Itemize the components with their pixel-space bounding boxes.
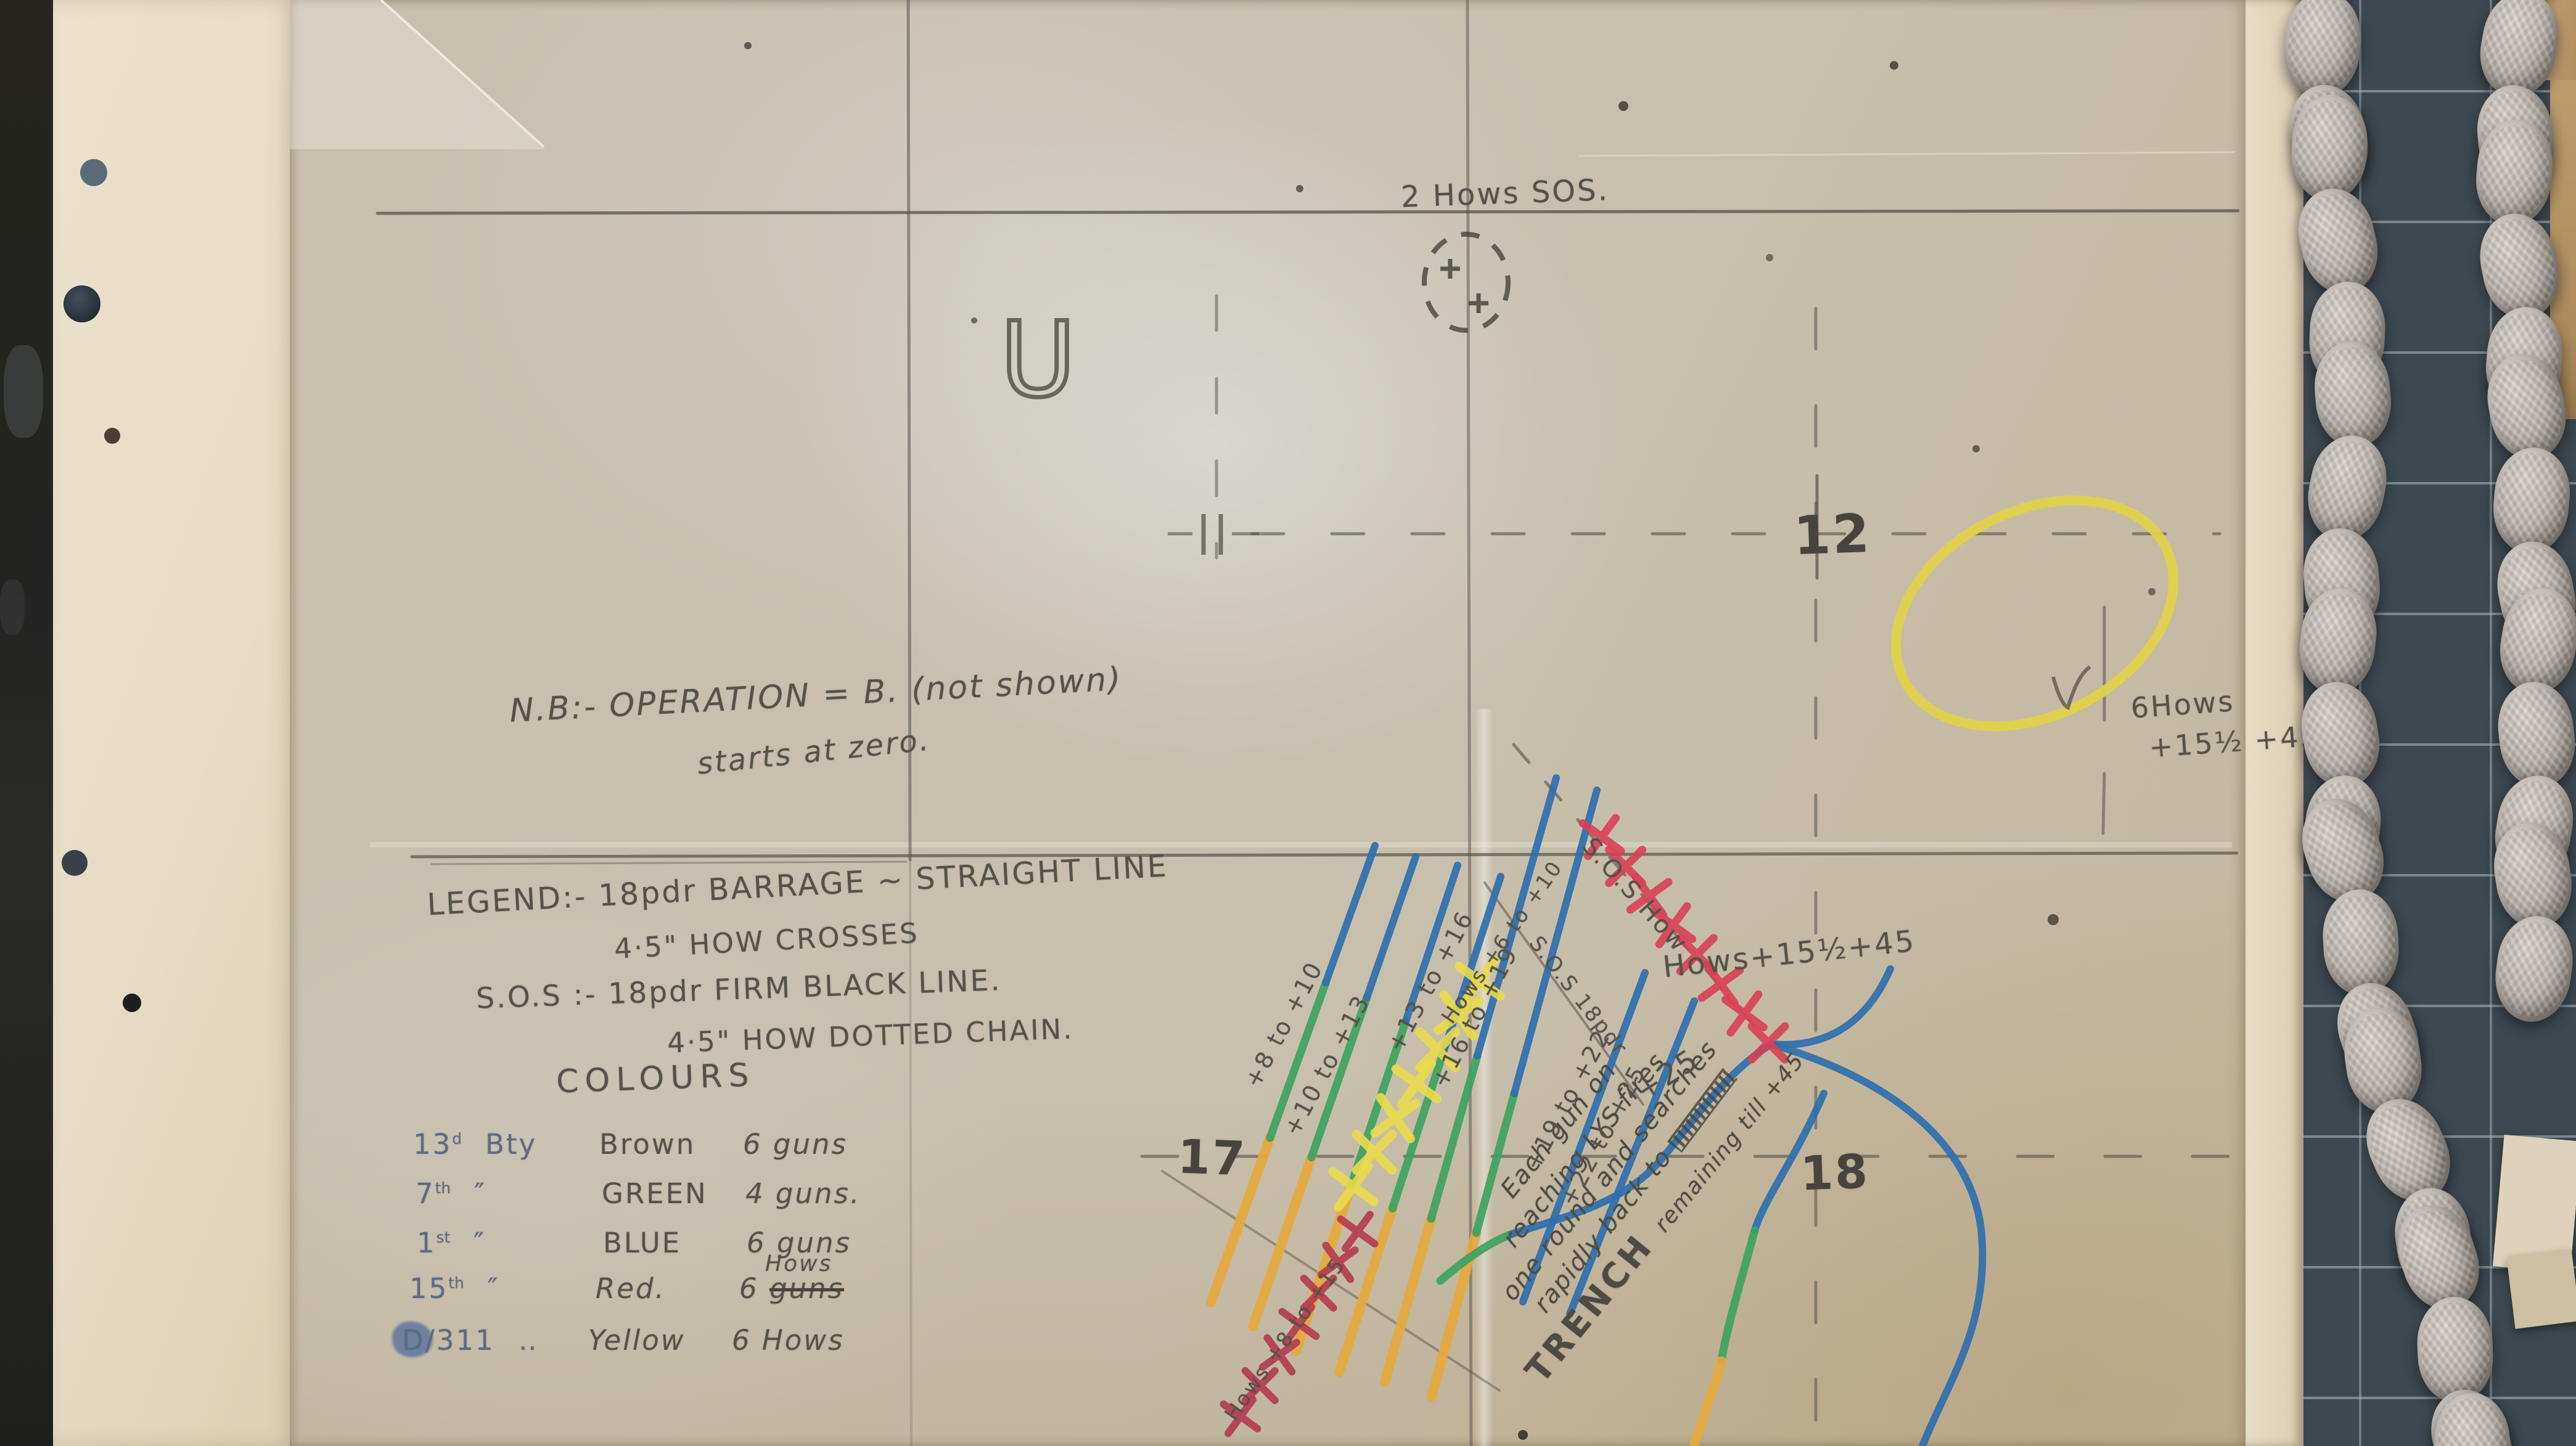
grid-number: 17 xyxy=(1177,1129,1248,1187)
barrage-label: +15½ +45 xyxy=(2148,719,2321,764)
grid-number: 18 xyxy=(1800,1144,1871,1201)
barrage-label: S.O.S How xyxy=(1577,832,1694,958)
labels-layer: +8 to +10+10 to +13+13 to +16Hows +6 to … xyxy=(0,0,2576,1446)
barrage-map-photo: U 2 Hows SOS. N.B:- OPERATION = B. (not … xyxy=(0,0,2576,1446)
barrage-label: Hows+15½+45 xyxy=(1661,924,1917,985)
grid-number: 12 xyxy=(1792,503,1872,567)
barrage-label: S.O.S 18pdr xyxy=(1524,931,1633,1060)
barrage-label: 6Hows xyxy=(2130,684,2236,725)
barrage-label: Hows +8 to +15 xyxy=(1220,1252,1350,1425)
barrage-label: +25 xyxy=(1629,1042,1705,1108)
